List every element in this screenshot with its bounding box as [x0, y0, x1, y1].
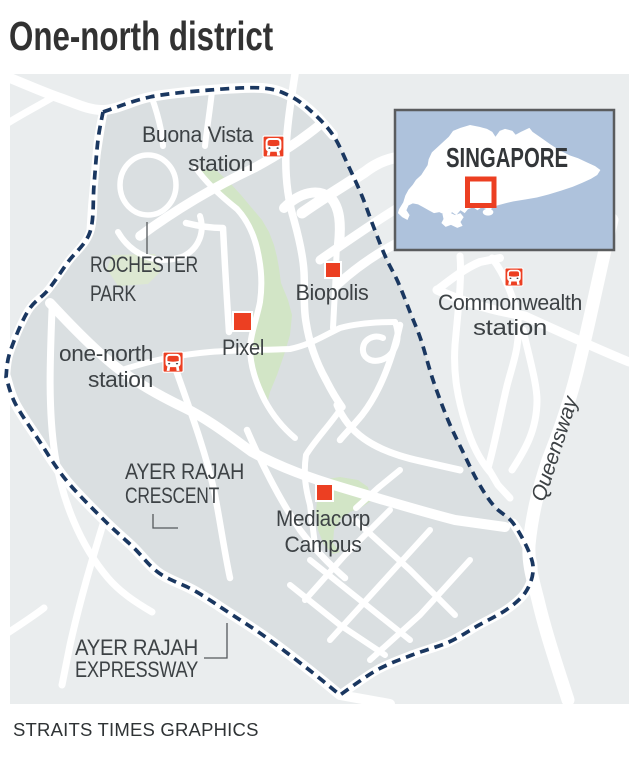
svg-text:station: station — [473, 315, 547, 340]
svg-text:Biopolis: Biopolis — [296, 280, 369, 305]
svg-text:ROCHESTER: ROCHESTER — [90, 252, 198, 277]
svg-text:Commonwealth: Commonwealth — [438, 290, 582, 315]
svg-text:PARK: PARK — [90, 281, 137, 306]
svg-text:station: station — [88, 367, 153, 392]
svg-text:SINGAPORE: SINGAPORE — [446, 142, 568, 173]
svg-text:Campus: Campus — [285, 532, 362, 557]
svg-text:CRESCENT: CRESCENT — [125, 483, 219, 508]
svg-text:Pixel: Pixel — [222, 335, 264, 360]
svg-text:Buona Vista: Buona Vista — [142, 122, 254, 147]
svg-text:Mediacorp: Mediacorp — [276, 506, 370, 531]
svg-text:station: station — [188, 151, 253, 176]
svg-text:EXPRESSWAY: EXPRESSWAY — [75, 657, 199, 682]
svg-text:one-north: one-north — [59, 341, 153, 366]
svg-text:AYER RAJAH: AYER RAJAH — [125, 459, 244, 484]
